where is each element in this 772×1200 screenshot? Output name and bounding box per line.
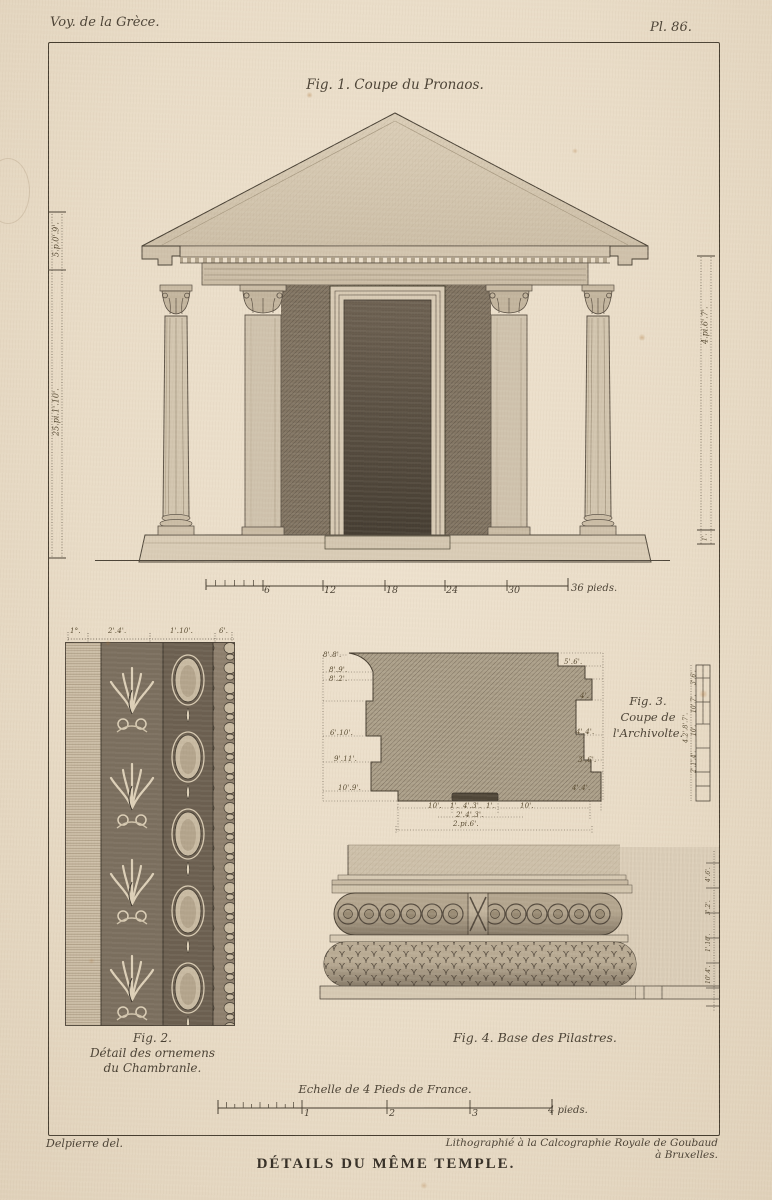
main-title: DÉTAILS DU MÊME TEMPLE. [186,1156,586,1173]
base-upper-block [332,845,632,893]
pediment [142,113,648,246]
plate-page: { "plate": { "series_title": "Voy. de la… [0,0,772,1200]
cornice-return-right [610,246,648,265]
entablature [180,246,610,285]
fig2-dim-1: 1°. [70,627,81,635]
fig3-ruler-dim-3: 10'. [689,718,699,742]
fig4-rdim-2: 3'.2'. [704,895,713,921]
fig3-rdim-4: 3'.6'. [578,756,596,764]
fig3-ruler-total: 4.2'.8'.7'. [681,688,690,768]
fig4-rdim-3: 1'.10'. [704,930,713,956]
bottom-scale-1: 1 [304,1108,310,1119]
fig4-caption: Fig. 4. Base des Pilastres. [430,1030,640,1045]
fig3-ruler-dim-1: 3'.6'. [689,666,699,690]
archivolt-profile [349,653,601,801]
fig3-ldim-5: 9'.11'. [334,755,357,763]
fig3-rdim-5: 4'.4'. [572,784,590,792]
base-plinth [320,986,719,999]
fig4-rdim-4: 10'.4'. [704,962,713,988]
fig3-ldim-2: 8'.9'. [329,666,347,674]
column-left [158,285,194,535]
fig3-ldim-1: 8'.8'. [323,651,341,659]
column-right [580,285,616,535]
fig1-scale-12: 12 [324,585,336,596]
fig3-ldim-3: 8'.2'. [329,675,347,683]
fig1-scale-6: 6 [264,585,270,596]
pilaster-right [486,285,532,535]
fig3-rdim-1: 5'.6'. [564,658,582,666]
fig1-left-dim-upper: 5.p.0'.9'. [49,214,63,266]
fig1-scale-end: 36 pieds. [571,583,617,594]
fig4-rdim-1: 4'.6'. [704,862,713,888]
fig3-ldim-6: 10'.9'. [338,784,361,792]
guilloche-torus [334,893,622,935]
fig2-caption-line1: Fig. 2. [80,1031,225,1046]
fig1-left-dim-lower: 25.pi.1'.10'. [49,352,63,472]
pilaster-left [240,285,286,535]
soffit-fillet [452,793,498,801]
fig1-scale-30: 30 [508,585,520,596]
fig3-bdim-2: 1'. [450,802,459,810]
fig3-bdim-3: 4'.3'. [463,802,481,810]
fig2-caption-line3: du Chambranle. [80,1061,225,1076]
fig3-rdim-3: 4'.4'. [576,728,594,736]
fig2-dim-3: 1'.10'. [170,627,193,635]
fig3-rdim-2: 4'. [580,692,589,700]
fig1-scale-bar [200,574,600,602]
fig3-bdim-row2: 2'.4'.3'. [456,811,484,819]
fig1-scale-24: 24 [446,585,458,596]
fillet [330,935,628,942]
bottom-scale-3: 3 [472,1108,478,1119]
credit-left: Delpierre del. [46,1137,123,1150]
scale-torus [324,942,636,986]
fig1-right-dim-small: 1'. [699,531,711,544]
fig1-drawing [130,106,660,564]
fig2-caption: Fig. 2. Détail des ornemens du Chambranl… [80,1031,225,1076]
fig2-dim-4: 6'. [219,627,228,635]
fig3-bdim-5: 10'. [520,802,534,810]
bead-and-reel-band [213,642,235,1026]
fig3-bdim-total: 2.pi.6'. [453,820,479,828]
fig3-ruler-dim-4: 2'.1'.4'. [689,746,699,778]
fig4-drawing [318,843,719,1025]
fig3-bdim-4: 1'. [486,802,495,810]
stylobate [139,535,651,562]
paper-watermark-ring [0,158,30,224]
door-threshold [325,536,450,549]
cornice-return-left [142,246,180,265]
bottom-scale-bar [210,1094,600,1124]
paper-stain [420,1182,428,1189]
fig2-dim-2: 2'.4'. [108,627,126,635]
series-title: Voy. de la Grèce. [50,15,160,30]
fig3-ruler-dim-2: 10'.7'. [689,692,699,716]
fig1-caption: Fig. 1. Coupe du Pronaos. [270,77,520,93]
bottom-scale-end: 4 pieds. [548,1105,588,1116]
fig1-scale-18: 18 [386,585,398,596]
plate-number: Pl. 86. [650,20,692,35]
fig3-bdim-1: 10'. [428,802,442,810]
fig2-caption-line2: Détail des ornemens [80,1046,225,1061]
doorway [330,286,445,538]
fig1-right-dim: 4.pi.6'.7'. [698,292,712,358]
ground-line [95,560,670,561]
fig2-drawing [65,642,235,1026]
fig3-ldim-4: 6'.10'. [330,729,353,737]
bottom-scale-2: 2 [389,1108,395,1119]
